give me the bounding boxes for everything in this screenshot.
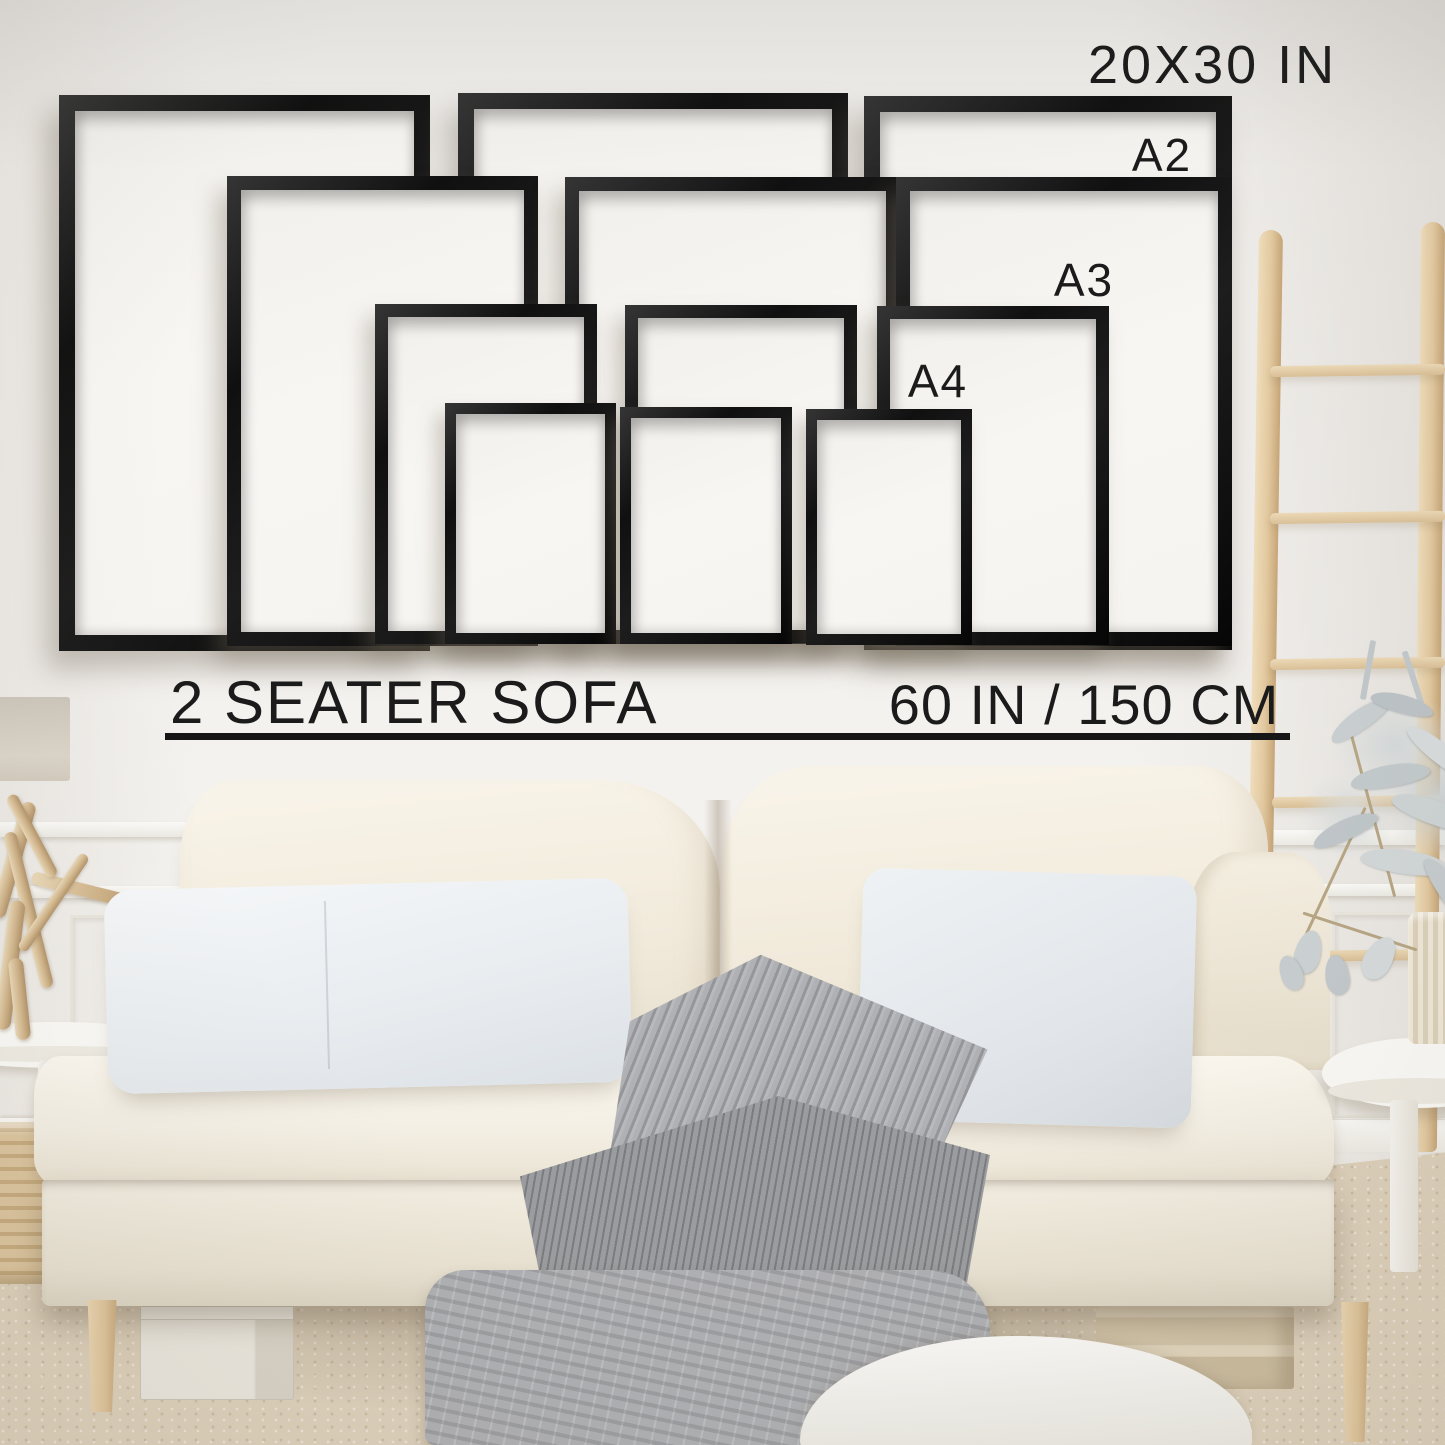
driftwood-branch [8, 957, 31, 1040]
frame-a4-right [806, 409, 972, 645]
lumbar-pillow [104, 878, 633, 1095]
label-20x30: 20X30 IN [1088, 34, 1336, 96]
label-sofa-width: 60 IN / 150 CM [888, 672, 1280, 737]
frame-mat [631, 418, 781, 633]
frame-a4-center [620, 407, 792, 644]
side-table-right-leg [1390, 1100, 1418, 1272]
drooping-bud [1355, 931, 1402, 985]
frame-a4-left [445, 403, 616, 644]
lamp-shade [0, 697, 70, 781]
label-a2: A2 [1122, 128, 1202, 182]
frame-mat [817, 420, 961, 634]
frame-mat [456, 414, 605, 633]
storage-box-white [140, 1306, 294, 1400]
room-scene: 20X30 IN A2 A3 A4 2 SEATER SOFA 60 IN / … [0, 0, 1445, 1445]
drooping-bud [1322, 954, 1351, 997]
dried-eucalyptus-plant [1270, 680, 1445, 1050]
label-sofa-type: 2 SEATER SOFA [170, 668, 640, 737]
scale-underline [165, 733, 1290, 740]
label-a4: A4 [898, 354, 978, 408]
label-a3: A3 [1044, 253, 1124, 307]
